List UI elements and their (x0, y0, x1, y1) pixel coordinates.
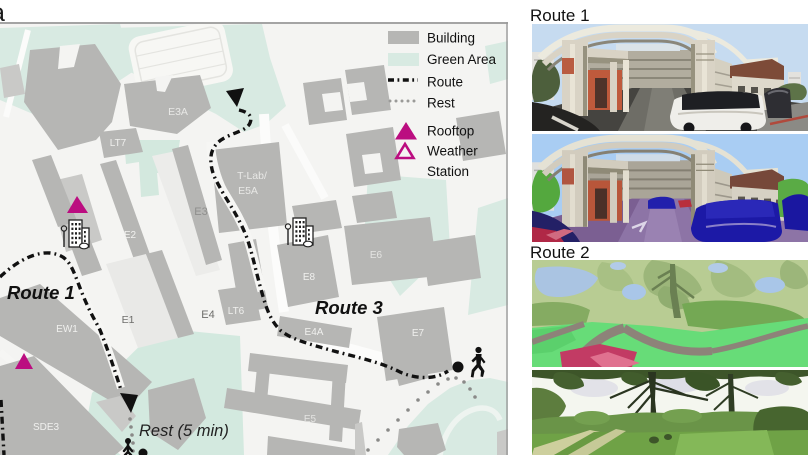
svg-text:Green Area: Green Area (427, 52, 497, 67)
svg-text:Route 3: Route 3 (315, 297, 384, 318)
svg-text:LT7: LT7 (110, 138, 127, 149)
svg-text:E4A: E4A (305, 327, 324, 338)
svg-text:Weather: Weather (427, 144, 478, 159)
svg-text:Route: Route (427, 75, 463, 90)
svg-text:Rooftop: Rooftop (427, 124, 474, 139)
svg-text:Rest: Rest (427, 96, 455, 111)
svg-text:E5: E5 (304, 414, 317, 425)
svg-text:EW1: EW1 (56, 324, 78, 335)
svg-text:E7: E7 (412, 328, 425, 339)
svg-text:E5A: E5A (238, 185, 258, 197)
svg-text:Route 1: Route 1 (7, 282, 75, 303)
svg-text:E2: E2 (124, 230, 137, 241)
svg-text:E6: E6 (370, 250, 383, 261)
svg-text:E4: E4 (201, 309, 214, 321)
svg-text:E8: E8 (303, 272, 316, 283)
svg-text:Rest (5 min): Rest (5 min) (139, 422, 229, 440)
svg-text:T-Lab/: T-Lab/ (237, 170, 267, 182)
svg-text:Building: Building (427, 31, 475, 46)
svg-text:SDE3: SDE3 (33, 422, 60, 433)
svg-text:LT6: LT6 (228, 306, 245, 317)
svg-text:E3: E3 (194, 206, 207, 218)
svg-text:Station: Station (427, 164, 469, 179)
svg-text:E1: E1 (122, 314, 135, 326)
svg-text:E3A: E3A (168, 106, 188, 118)
